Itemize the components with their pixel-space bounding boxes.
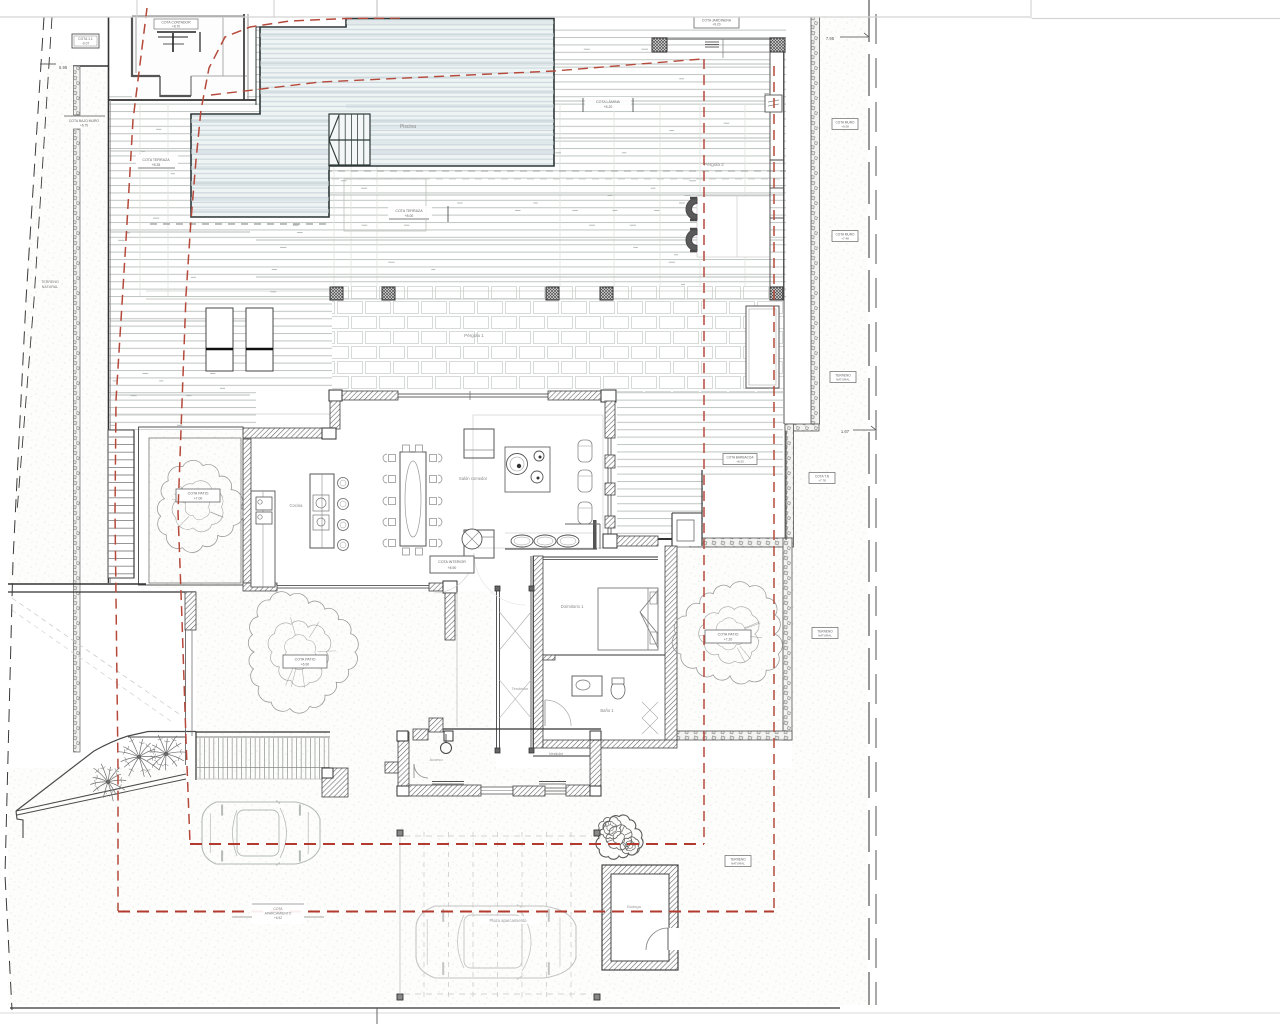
svg-text:+9.20: +9.20: [712, 23, 720, 27]
svg-text:NATURAL: NATURAL: [836, 378, 850, 382]
svg-text:COTA PATIO: COTA PATIO: [718, 633, 739, 637]
svg-text:NATURAL: NATURAL: [731, 862, 745, 866]
svg-text:1.67: 1.67: [841, 429, 850, 434]
svg-text:Acceso: Acceso: [429, 757, 443, 762]
svg-text:COTA: COTA: [273, 907, 283, 911]
svg-text:+7.78: +7.78: [818, 479, 826, 483]
svg-text:+7.20: +7.20: [724, 638, 733, 642]
svg-text:Vestidor: Vestidor: [549, 751, 564, 756]
svg-text:+6.75: +6.75: [80, 124, 88, 128]
svg-text:-0.07: -0.07: [82, 42, 89, 46]
svg-text:+8.35: +8.35: [152, 163, 161, 167]
svg-text:APARCAMIENTO: APARCAMIENTO: [265, 912, 292, 916]
svg-text:Tendedor: Tendedor: [512, 686, 529, 691]
svg-text:Baño 1: Baño 1: [600, 708, 614, 713]
svg-text:+7.00: +7.00: [194, 497, 203, 501]
svg-text:7.95: 7.95: [826, 36, 835, 41]
svg-text:COTA INTERIOR: COTA INTERIOR: [438, 560, 466, 564]
svg-text:+6.90: +6.90: [301, 663, 310, 667]
svg-text:TERRENO: TERRENO: [41, 280, 59, 284]
svg-text:COTA 1.1: COTA 1.1: [78, 37, 93, 41]
svg-text:+8.90: +8.90: [448, 566, 457, 570]
svg-text:COTA PATIO: COTA PATIO: [295, 658, 316, 662]
svg-text:Cocina: Cocina: [289, 503, 303, 508]
svg-text:+6.52: +6.52: [274, 916, 282, 920]
svg-text:+7.48: +7.48: [841, 237, 849, 241]
svg-text:COTA TERRAZA: COTA TERRAZA: [395, 209, 423, 213]
svg-text:+8.20: +8.20: [736, 460, 744, 464]
svg-text:NATURAL: NATURAL: [818, 634, 832, 638]
svg-text:COTA PATIO: COTA PATIO: [188, 492, 209, 496]
svg-text:5.95: 5.95: [59, 65, 68, 70]
svg-text:Pérgola 1: Pérgola 1: [464, 333, 484, 338]
svg-text:Pérgola 2: Pérgola 2: [704, 162, 724, 167]
svg-text:+8.00: +8.00: [405, 214, 414, 218]
svg-text:+8.70: +8.70: [172, 25, 180, 29]
svg-text:COTA BAJO MURO: COTA BAJO MURO: [69, 119, 99, 123]
svg-text:NATURAL: NATURAL: [42, 285, 59, 289]
svg-text:COTA LÁMINA: COTA LÁMINA: [596, 100, 620, 104]
svg-text:COTA TERRAZA: COTA TERRAZA: [142, 158, 170, 162]
svg-text:Piscina: Piscina: [400, 124, 416, 130]
svg-text:Salón comedor: Salón comedor: [459, 476, 488, 481]
svg-text:Dormitorio 1: Dormitorio 1: [561, 604, 584, 609]
svg-text:Bodega: Bodega: [627, 904, 642, 909]
svg-text:Plaza aparcamiento: Plaza aparcamiento: [489, 918, 527, 923]
svg-text:+8.20: +8.20: [604, 105, 613, 109]
svg-text:+9.08: +9.08: [841, 125, 849, 129]
